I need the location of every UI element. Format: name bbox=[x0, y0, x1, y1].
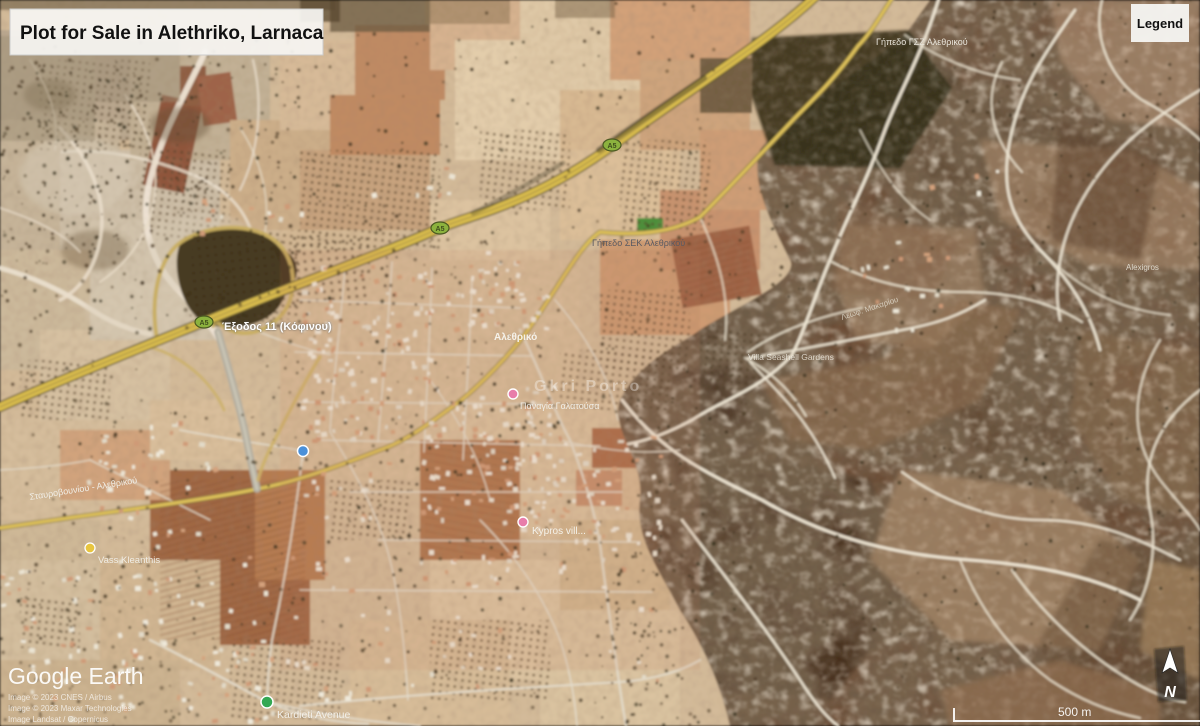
svg-text:Legend: Legend bbox=[1137, 16, 1183, 31]
svg-text:A5: A5 bbox=[200, 320, 209, 327]
svg-text:A5: A5 bbox=[608, 143, 617, 150]
svg-text:Έξοδος 11 (Κόφινου): Έξοδος 11 (Κόφινου) bbox=[222, 321, 332, 333]
svg-text:Γήπεδο ΓΣΖ Αλεθρικού: Γήπεδο ΓΣΖ Αλεθρικού bbox=[876, 37, 968, 47]
svg-text:A5: A5 bbox=[436, 226, 445, 233]
svg-text:Γήπεδο ΣΕΚ Αλεθρικού: Γήπεδο ΣΕΚ Αλεθρικού bbox=[592, 238, 685, 248]
svg-text:Google Earth: Google Earth bbox=[8, 663, 144, 689]
svg-text:Image Landsat / Copernicus: Image Landsat / Copernicus bbox=[8, 715, 108, 724]
svg-text:Kardieti Avenue: Kardieti Avenue bbox=[277, 709, 351, 721]
svg-text:Alexigros: Alexigros bbox=[1126, 263, 1159, 272]
svg-text:Plot for Sale in Alethriko, La: Plot for Sale in Alethriko, Larnaca bbox=[20, 23, 324, 44]
svg-text:Gkri Porto: Gkri Porto bbox=[534, 378, 642, 395]
svg-text:N: N bbox=[1164, 684, 1176, 701]
svg-text:Αλεθρικό: Αλεθρικό bbox=[494, 332, 537, 343]
svg-text:Villa Seashell Gardens: Villa Seashell Gardens bbox=[748, 352, 834, 362]
svg-text:Kypros vill...: Kypros vill... bbox=[532, 526, 586, 537]
svg-text:Vass Kleanthis: Vass Kleanthis bbox=[98, 555, 160, 566]
svg-text:Παναγία Γαλατούσα: Παναγία Γαλατούσα bbox=[520, 401, 599, 411]
svg-text:500 m: 500 m bbox=[1058, 705, 1091, 719]
svg-text:Image © 2023 Maxar Technologie: Image © 2023 Maxar Technologies bbox=[8, 704, 132, 713]
svg-text:Image © 2023 CNES / Airbus: Image © 2023 CNES / Airbus bbox=[8, 693, 112, 702]
